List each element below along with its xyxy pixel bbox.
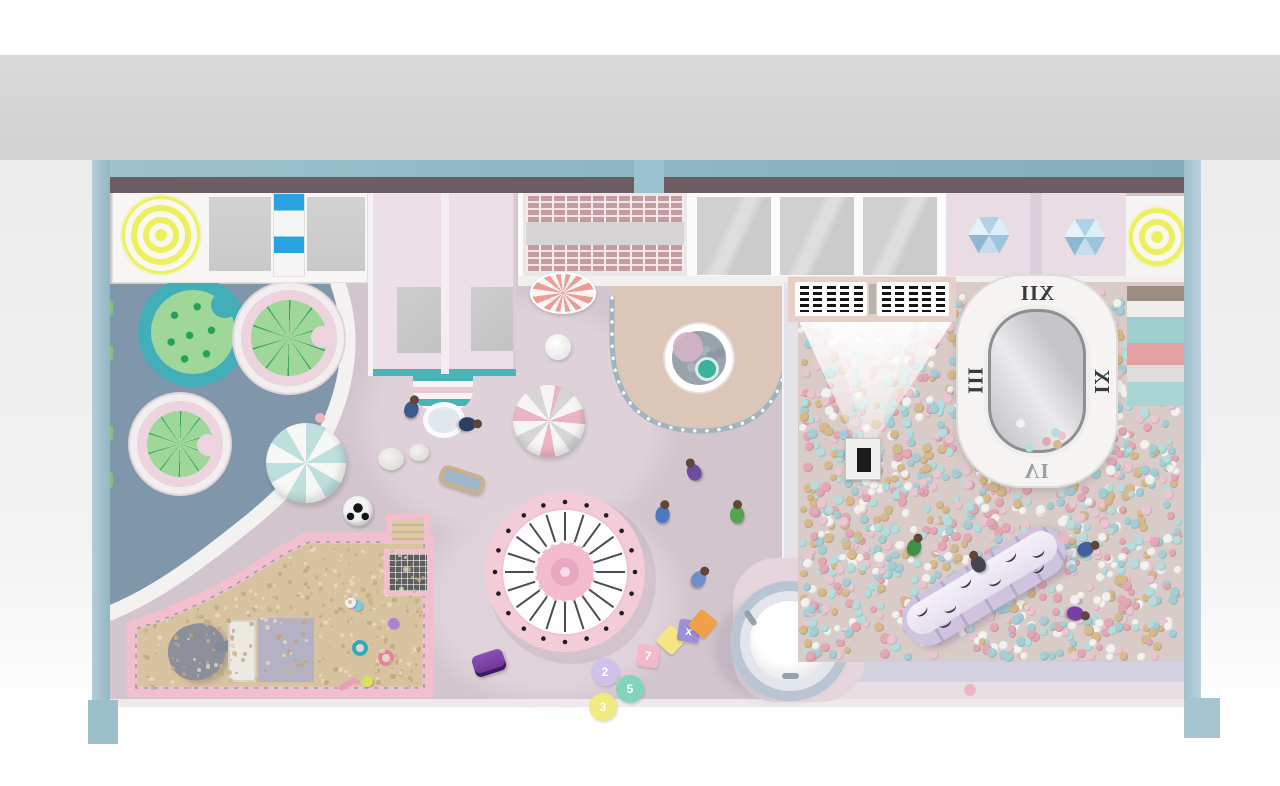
ball xyxy=(1127,541,1137,551)
sand-speck xyxy=(288,556,292,560)
sand-speck xyxy=(337,573,341,577)
ball xyxy=(874,552,884,562)
ball xyxy=(1008,625,1016,633)
sand-speck xyxy=(346,589,350,593)
ball xyxy=(1053,440,1062,449)
ball xyxy=(1027,589,1036,598)
ball xyxy=(1174,518,1182,526)
melon-trampoline xyxy=(130,394,230,494)
ball xyxy=(836,476,843,483)
ball xyxy=(877,603,885,611)
ball xyxy=(920,478,928,486)
ball xyxy=(1128,491,1135,498)
ball xyxy=(862,494,870,502)
ball xyxy=(835,468,844,477)
ball xyxy=(1163,501,1171,509)
sand-speck xyxy=(415,682,417,684)
sand-speck xyxy=(392,674,396,678)
ball xyxy=(868,531,876,539)
sand-speck xyxy=(338,607,343,612)
sand-speck xyxy=(342,582,345,585)
spiral-target-mat xyxy=(122,196,200,274)
wall-right-pillar-foot xyxy=(1184,698,1220,738)
tile-number: 5 xyxy=(627,682,634,696)
ball xyxy=(1092,510,1100,518)
cookie-trampoline xyxy=(138,277,248,387)
dash-column xyxy=(909,286,918,312)
ball xyxy=(799,424,807,432)
ball xyxy=(1056,498,1065,507)
child-figure xyxy=(729,500,745,524)
ball xyxy=(950,544,959,553)
sand-speck xyxy=(417,578,421,582)
ball xyxy=(855,610,862,617)
sand-speck xyxy=(375,663,378,666)
ball xyxy=(955,301,962,308)
sand-speck xyxy=(381,636,383,638)
ball xyxy=(1039,616,1049,626)
ball xyxy=(1150,415,1159,424)
ball xyxy=(878,577,885,584)
ball xyxy=(1108,507,1116,515)
ball xyxy=(860,515,869,524)
ball xyxy=(844,647,851,654)
gem-decoration-icon xyxy=(968,216,1010,254)
dash-column xyxy=(813,286,822,312)
sand-speck xyxy=(348,674,351,677)
ball xyxy=(901,470,909,478)
wall-stripe xyxy=(1127,286,1185,301)
ball xyxy=(944,552,953,561)
sand-toy xyxy=(362,676,373,687)
ball xyxy=(874,622,884,632)
ball xyxy=(1119,538,1126,545)
ball xyxy=(902,509,910,517)
ball xyxy=(959,294,966,301)
ball xyxy=(898,497,907,506)
ball xyxy=(944,518,952,526)
ball xyxy=(887,635,896,644)
ball xyxy=(812,642,820,650)
ball xyxy=(929,483,938,492)
sand-speck xyxy=(416,610,419,613)
ball xyxy=(803,559,813,569)
sand-speck xyxy=(323,558,326,561)
sand-speck xyxy=(340,633,344,637)
sand-speck xyxy=(383,590,386,593)
ball xyxy=(818,516,828,526)
sand-speck xyxy=(343,610,346,613)
tile-number: 2 xyxy=(602,665,609,679)
sand-speck xyxy=(262,597,265,600)
sand-speck xyxy=(289,670,293,674)
gem-decoration-icon xyxy=(1064,218,1106,256)
ball xyxy=(1168,595,1178,605)
soccer-ball xyxy=(343,496,373,526)
ball xyxy=(839,517,849,527)
sand-speck xyxy=(399,587,404,592)
ball xyxy=(1065,486,1075,496)
ball xyxy=(1096,644,1103,651)
ball xyxy=(809,627,819,637)
ball xyxy=(949,357,958,366)
beach-ball xyxy=(266,423,346,503)
ball xyxy=(951,532,961,542)
ball xyxy=(962,465,972,475)
ball xyxy=(946,448,955,457)
ball xyxy=(1164,622,1173,631)
sand-speck xyxy=(338,667,343,672)
ball xyxy=(1174,566,1181,573)
ball xyxy=(1119,506,1126,513)
ball xyxy=(1065,549,1073,557)
wall-stripe xyxy=(1127,301,1185,317)
dash-column xyxy=(854,286,863,312)
umbrella-canopy xyxy=(530,272,596,314)
ball xyxy=(844,628,854,638)
ball xyxy=(924,505,932,513)
glass-partition xyxy=(692,192,946,280)
ball xyxy=(1163,583,1171,591)
sand-speck xyxy=(155,652,158,655)
sand-speck xyxy=(379,605,381,607)
ball xyxy=(1009,604,1019,614)
sand-speck xyxy=(376,636,378,638)
sand-speck xyxy=(214,663,218,667)
ball xyxy=(821,604,831,614)
ball xyxy=(1116,413,1124,421)
sand-speck xyxy=(322,657,325,660)
sand-speck xyxy=(376,590,379,593)
interactive-projector xyxy=(845,438,881,480)
sand-speck xyxy=(389,652,392,655)
sand-speck xyxy=(215,613,220,618)
ball xyxy=(1104,497,1113,506)
ball xyxy=(943,394,953,404)
sand-speck xyxy=(304,562,307,565)
ball xyxy=(1108,626,1117,635)
sand-speck xyxy=(323,620,328,625)
hopscotch-circle: 5 xyxy=(616,675,644,703)
ball xyxy=(820,643,829,652)
sand-speck xyxy=(347,548,350,551)
ball xyxy=(1163,455,1172,464)
ball xyxy=(928,361,935,368)
melon-trampoline xyxy=(234,283,344,393)
clock-numeral-6: VI xyxy=(1024,458,1049,483)
figure-head xyxy=(733,500,742,509)
sand-speck xyxy=(153,624,156,627)
ball xyxy=(869,499,877,507)
ball xyxy=(907,438,915,446)
sand-speck xyxy=(412,563,414,565)
floor-light-patch xyxy=(410,495,690,710)
sand-speck xyxy=(304,611,309,616)
sand-speck xyxy=(265,625,270,630)
ball xyxy=(1118,553,1126,561)
ball xyxy=(874,523,883,532)
sand-speck xyxy=(414,624,418,628)
ball xyxy=(1025,639,1032,646)
sand-speck xyxy=(203,621,207,625)
sand-speck xyxy=(411,576,414,579)
sand-speck xyxy=(403,567,408,572)
ball xyxy=(1025,499,1033,507)
ball xyxy=(924,563,931,570)
sand-speck xyxy=(321,679,325,683)
ball xyxy=(1123,624,1130,631)
sand-speck xyxy=(196,613,198,615)
ball xyxy=(863,546,871,554)
ball xyxy=(1126,608,1134,616)
sand-speck xyxy=(406,609,409,612)
clock-slide: XII III IX VI xyxy=(958,276,1116,486)
cabinet-panel xyxy=(209,197,271,271)
sand-speck xyxy=(247,614,250,617)
ball xyxy=(1137,653,1145,661)
sand-speck xyxy=(254,593,257,596)
playground-floorplan-render: XII III IX VI 2537x xyxy=(0,0,1280,786)
sand-speck xyxy=(186,619,189,622)
sand-speck xyxy=(182,672,186,676)
striped-wall-panel xyxy=(1127,286,1185,406)
wall-column xyxy=(634,160,664,193)
ball xyxy=(907,459,915,467)
sand-speck xyxy=(197,608,199,610)
ball xyxy=(929,404,939,414)
wall-stripe xyxy=(1127,317,1185,343)
sand-speck xyxy=(274,584,277,587)
ball xyxy=(887,561,897,571)
sand-speck xyxy=(310,546,312,548)
pebble-pouf xyxy=(378,448,404,470)
sand-speck xyxy=(339,560,342,563)
sand-speck xyxy=(196,615,200,619)
ball xyxy=(1069,501,1077,509)
dash-column xyxy=(936,286,945,312)
ball xyxy=(1076,513,1086,523)
ball xyxy=(824,427,833,436)
ball xyxy=(803,463,812,472)
ball xyxy=(803,583,811,591)
shelf-unit xyxy=(112,186,368,283)
sand-speck xyxy=(290,619,293,622)
ball xyxy=(1019,507,1027,515)
ball xyxy=(989,482,999,492)
sand-speck xyxy=(419,614,422,617)
ball xyxy=(1048,586,1055,593)
ball xyxy=(911,576,919,584)
sand-speck xyxy=(278,572,282,576)
ball xyxy=(1056,649,1064,657)
ball xyxy=(800,412,809,421)
ball xyxy=(986,613,994,621)
ball xyxy=(1166,439,1174,447)
figure-head xyxy=(473,419,483,429)
spiral-target-mat xyxy=(1129,208,1185,266)
ball xyxy=(1004,652,1014,662)
ball xyxy=(1160,476,1168,484)
sand-speck xyxy=(226,618,231,623)
ball xyxy=(1149,444,1158,453)
ball xyxy=(1141,506,1151,516)
ball xyxy=(902,397,912,407)
ball xyxy=(835,565,845,575)
ball xyxy=(895,481,902,488)
ball xyxy=(942,562,951,571)
ball xyxy=(1162,420,1169,427)
sandbox-entrance-step xyxy=(386,514,430,544)
ball xyxy=(1118,427,1127,436)
ball xyxy=(947,370,957,380)
sand-speck xyxy=(234,597,238,601)
sand-speck xyxy=(348,600,352,604)
ball xyxy=(1068,564,1077,573)
ball xyxy=(963,520,973,530)
sand-speck xyxy=(267,583,272,588)
ball xyxy=(1013,499,1023,509)
ball xyxy=(842,540,851,549)
ball xyxy=(1150,537,1160,547)
sand-speck xyxy=(352,576,354,578)
ball xyxy=(821,397,830,406)
ball xyxy=(801,369,810,378)
sand-speck xyxy=(341,644,344,647)
ball xyxy=(1085,498,1093,506)
ball xyxy=(1148,597,1158,607)
ball xyxy=(810,481,820,491)
ball xyxy=(945,434,955,444)
dash-column xyxy=(922,286,931,312)
sand-speck xyxy=(392,598,396,602)
ball xyxy=(1052,608,1060,616)
wall-right xyxy=(1184,160,1201,706)
ball xyxy=(961,540,969,548)
sand-speck xyxy=(396,578,399,581)
ball xyxy=(1108,528,1115,535)
ball xyxy=(805,442,814,451)
striped-column xyxy=(273,193,305,277)
ball xyxy=(800,570,807,577)
sand-speck xyxy=(261,606,263,608)
sand-speck xyxy=(170,680,174,684)
ball xyxy=(1060,621,1067,628)
ball xyxy=(1056,584,1064,592)
sand-speck xyxy=(369,571,372,574)
ball xyxy=(811,533,818,540)
ball xyxy=(1053,593,1063,603)
ball xyxy=(852,601,861,610)
sand-speck xyxy=(384,638,388,642)
sand-speck xyxy=(373,608,375,610)
tile-symbol: 7 xyxy=(644,649,653,664)
sand-speck xyxy=(334,583,338,587)
interactive-dash-panel xyxy=(788,276,956,322)
cabinet-panel xyxy=(307,197,365,271)
sand-speck xyxy=(325,568,328,571)
tower-window xyxy=(397,287,441,353)
ball xyxy=(804,519,813,528)
sand-speck xyxy=(301,632,306,637)
hopscotch-circle: 2 xyxy=(591,658,619,686)
brick-strip xyxy=(526,196,684,222)
sand-speck xyxy=(255,678,258,681)
ball xyxy=(1139,523,1148,532)
ball xyxy=(878,535,887,544)
sand-speck xyxy=(389,660,393,664)
sand-speck xyxy=(243,652,247,656)
ball xyxy=(1169,630,1177,638)
ball xyxy=(831,608,839,616)
ball xyxy=(1147,548,1156,557)
sand-speck xyxy=(273,619,277,623)
sand-speck xyxy=(395,661,399,665)
ball xyxy=(839,554,846,561)
clock-numeral-9: IX xyxy=(1089,368,1114,393)
dash-board-slot xyxy=(869,284,876,314)
sand-speck xyxy=(369,609,371,611)
ball xyxy=(851,487,860,496)
ball xyxy=(877,584,885,592)
hopscotch-square: 7 xyxy=(636,644,661,669)
ball xyxy=(860,564,868,572)
ball xyxy=(880,513,889,522)
sand-speck xyxy=(294,639,298,643)
child-figure xyxy=(457,415,482,433)
ball xyxy=(890,430,899,439)
toddler-ball-pool xyxy=(665,324,733,392)
ball xyxy=(1070,640,1077,647)
clock-numeral-12: XII xyxy=(1020,281,1055,306)
wall-stripe xyxy=(1127,365,1185,382)
sand-speck xyxy=(318,586,323,591)
sand-speck xyxy=(144,628,148,632)
ball xyxy=(1169,549,1176,556)
clock-slide-mirror xyxy=(988,309,1086,453)
ball xyxy=(1058,490,1066,498)
sand-speck xyxy=(340,554,343,557)
ball xyxy=(915,413,924,422)
sand-speck xyxy=(304,660,307,663)
wall-stripe xyxy=(1127,382,1185,406)
ball xyxy=(834,495,844,505)
ball xyxy=(999,641,1008,650)
ball xyxy=(862,621,870,629)
ball xyxy=(1098,533,1106,541)
projector-screen xyxy=(857,448,871,472)
sand-speck xyxy=(354,553,358,557)
sand-speck xyxy=(407,662,411,666)
ball xyxy=(1102,592,1111,601)
tile-number: 3 xyxy=(600,700,607,714)
corner-shelf xyxy=(1126,196,1188,280)
ball xyxy=(932,470,941,479)
ball xyxy=(904,653,911,660)
sand-speck xyxy=(350,617,354,621)
hopscotch-circle: 3 xyxy=(589,693,617,721)
glass-pane xyxy=(780,197,854,275)
sand-speck xyxy=(206,639,210,643)
dash-column xyxy=(895,286,904,312)
ball xyxy=(828,590,836,598)
ball xyxy=(1001,523,1011,533)
clock-numeral-3: III xyxy=(963,367,988,395)
sand-speck xyxy=(219,664,223,668)
ball xyxy=(821,625,828,632)
sand-speck xyxy=(314,575,319,580)
sand-speck xyxy=(407,685,411,689)
ball xyxy=(1039,593,1047,601)
